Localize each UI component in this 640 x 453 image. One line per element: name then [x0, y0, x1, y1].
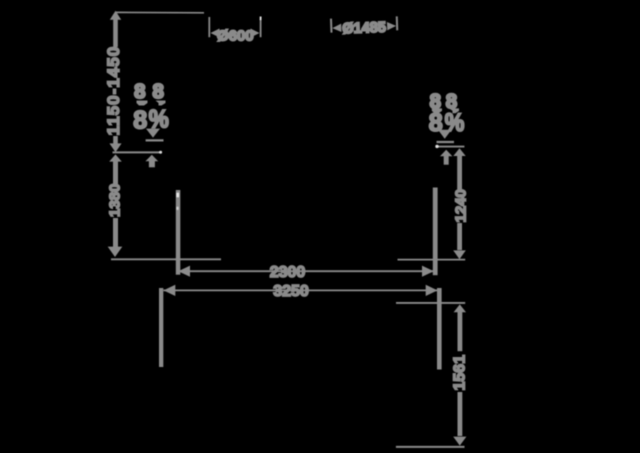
svg-text:8: 8 — [153, 81, 164, 103]
svg-text:1380: 1380 — [107, 184, 124, 217]
svg-text:2300: 2300 — [270, 264, 306, 281]
svg-text:Ø1485: Ø1485 — [342, 20, 386, 38]
svg-text:Ø600: Ø600 — [217, 27, 254, 44]
svg-text:8: 8 — [133, 106, 147, 134]
svg-text:1150-1450: 1150-1450 — [104, 46, 123, 136]
svg-text:1240: 1240 — [453, 189, 470, 222]
svg-text:1561: 1561 — [452, 355, 469, 391]
svg-text:3250: 3250 — [273, 283, 309, 300]
svg-text:8: 8 — [134, 81, 145, 103]
